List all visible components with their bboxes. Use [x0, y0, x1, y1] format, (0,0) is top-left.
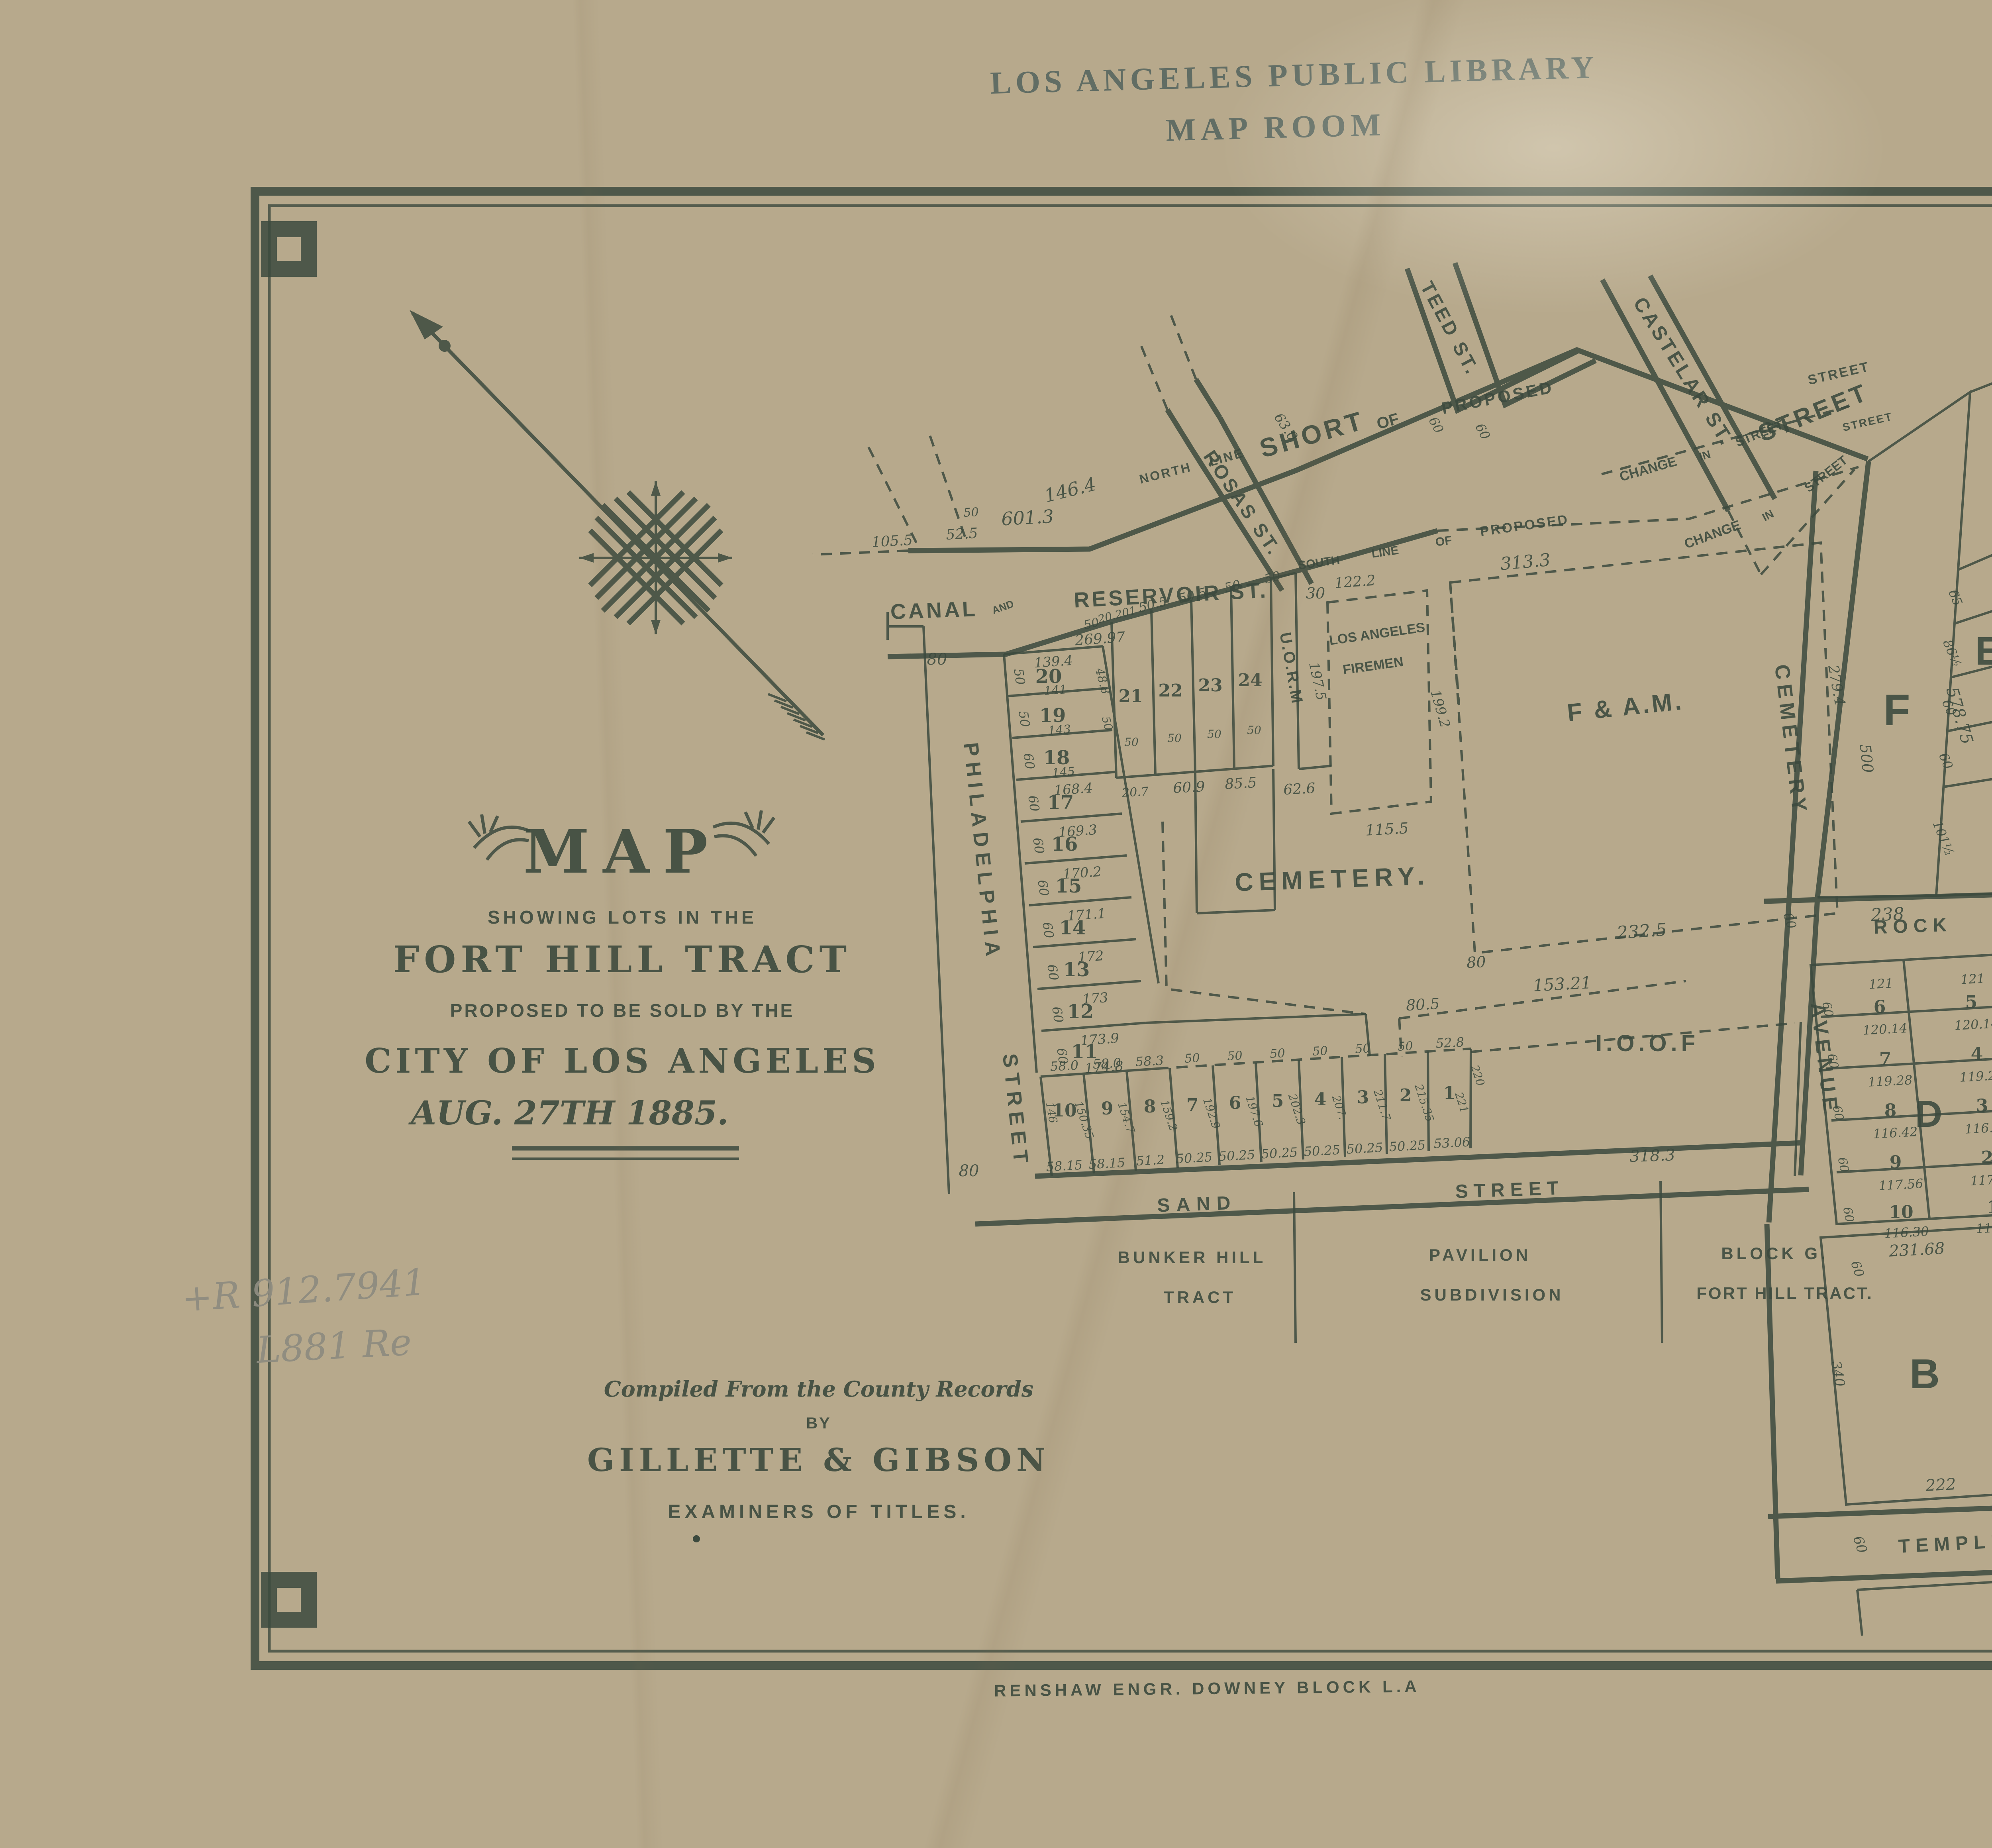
map-label: 60: [1035, 879, 1052, 897]
map-label: 50.25: [1218, 1147, 1255, 1164]
map-label: 60.9: [1172, 779, 1205, 796]
map-label: FIREMEN: [1342, 654, 1404, 678]
map-label: ROCK: [1873, 914, 1953, 938]
map-label: 60: [1936, 751, 1956, 771]
map-label: NORTH: [1138, 460, 1193, 487]
map-label: 101½: [1929, 818, 1957, 858]
map-label: 500: [1856, 743, 1876, 774]
call-number-line1: +R 912.7941: [180, 1261, 428, 1320]
map-label: 159.2: [1158, 1098, 1180, 1132]
map-label: 58.0: [1050, 1057, 1079, 1074]
map-label: 121: [1960, 971, 1985, 987]
library-stamp: LOS ANGELES PUBLIC LIBRARY MAP ROOM: [990, 50, 1600, 153]
map-label: CHANGE: [1618, 454, 1678, 485]
map-label: OF: [1435, 534, 1453, 549]
map-label: STREET: [998, 1052, 1033, 1169]
title-line2: SHOWING LOTS IN THE: [488, 907, 757, 928]
map-label: 120.14: [1954, 1016, 1992, 1033]
map-label: 80: [927, 650, 947, 669]
call-number: +R 912.7941 L881 Re: [180, 1261, 428, 1371]
map-label: 20.7: [1121, 785, 1149, 800]
map-label: CHANGE: [1682, 518, 1743, 552]
map-label: 60: [1780, 910, 1800, 930]
map-label: 53.06: [1433, 1134, 1470, 1152]
map-label: SUBDIVISION: [1420, 1285, 1564, 1304]
map-labels: 105.552.550601.3146.4NORTHLINESHORTOFPRO…: [871, 278, 1992, 1557]
map-label: 58.15: [1046, 1157, 1083, 1175]
map-label: 154.7: [1115, 1101, 1137, 1135]
map-label: 60: [1840, 1206, 1857, 1224]
map-label: 50.25: [1261, 1145, 1298, 1162]
map-label: 50: [1099, 715, 1116, 732]
map-label: 340: [1828, 1360, 1848, 1388]
map-label: 197.6: [1243, 1094, 1265, 1128]
map-label: I.O.O.F: [1596, 1030, 1699, 1056]
map-label: 60: [1848, 1259, 1867, 1279]
map-label: 86½: [1940, 638, 1965, 670]
map-label: 30: [1306, 585, 1325, 602]
credits-dot: [693, 1535, 700, 1542]
map-label: PAVILION: [1429, 1246, 1531, 1264]
map-label: 60: [1025, 795, 1042, 813]
map-label: 58.0: [1092, 1055, 1121, 1072]
map-label: SOUTH: [1297, 553, 1341, 572]
map-label: 145: [1052, 765, 1076, 780]
map-label: 60: [1039, 921, 1057, 940]
stamp-line1: LOS ANGELES PUBLIC LIBRARY: [990, 50, 1598, 101]
map-sheet: LOS ANGELES PUBLIC LIBRARY MAP ROOM: [0, 0, 1992, 1848]
map-label: 141: [1044, 683, 1068, 698]
title-word-map: MAP: [523, 817, 721, 887]
map-label: 10: [1889, 1202, 1913, 1222]
map-label: 50: [1011, 668, 1028, 686]
map-label: 50: [963, 505, 979, 520]
map-label: 153.21: [1533, 973, 1592, 995]
map-label: 202.3: [1286, 1092, 1308, 1126]
map-label: STREET: [1802, 453, 1850, 495]
frame-outer: [255, 191, 1992, 1666]
map-label: LOS ANGELES: [1328, 620, 1426, 648]
map-label: 15: [1055, 875, 1082, 897]
map-label: 58.15: [1088, 1155, 1125, 1172]
frame-corner-ornament-bl: [261, 1572, 317, 1628]
map-label: 3: [1976, 1096, 1988, 1116]
map-label: 6: [1229, 1093, 1241, 1113]
map-label: 60: [1819, 1001, 1836, 1018]
map-label: 313.3: [1500, 550, 1551, 575]
map-label: 116.30: [1976, 1219, 1992, 1236]
map-label: 115.5: [1365, 819, 1409, 839]
map-label: U.O.R.M: [1276, 631, 1306, 706]
map-label: 116.42: [1873, 1124, 1918, 1142]
map-label: 17: [1047, 791, 1074, 814]
map-label: 221: [1452, 1090, 1471, 1115]
map-label: 222: [1925, 1475, 1957, 1495]
map-label: 62.6: [1283, 780, 1316, 798]
map-label: 121: [1868, 975, 1894, 992]
map-label: 50.25: [1346, 1140, 1383, 1157]
map-label: 80: [959, 1162, 979, 1180]
map-label: 8: [1884, 1101, 1897, 1121]
title-flourish-left-icon: [469, 814, 530, 860]
map-label: FORT HILL TRACT.: [1696, 1284, 1873, 1303]
map-label: 215.35: [1412, 1082, 1437, 1123]
map-label: 16: [1051, 833, 1078, 855]
map-label: 14: [1059, 917, 1086, 939]
map-label: 13: [1063, 959, 1090, 981]
map-label: 60: [1020, 752, 1037, 771]
map-label: E: [1975, 629, 1992, 673]
map-label: 197.5: [1306, 661, 1329, 702]
map-label: STREET: [1841, 410, 1894, 434]
map-label: 50: [1184, 1051, 1200, 1066]
map-label: 80: [1466, 953, 1486, 971]
map-label: 50: [1270, 1046, 1286, 1061]
map-label: 4: [1971, 1044, 1983, 1064]
credits-block: Compiled From the County Records BY GILL…: [587, 1376, 1050, 1542]
map-label: 51.2: [1136, 1152, 1165, 1169]
map-label: 50: [1312, 1044, 1328, 1059]
map-label: B: [1910, 1351, 1941, 1397]
title-line5: CITY OF LOS ANGELES: [365, 1041, 880, 1081]
map-label: 4: [1314, 1089, 1327, 1110]
map-label: 60: [1850, 1534, 1870, 1556]
map-label: F & A.M.: [1566, 687, 1685, 727]
map-label: 232.5: [1616, 920, 1667, 944]
map-label: 117.56: [1878, 1176, 1924, 1193]
map-label: 60: [1835, 1156, 1851, 1174]
map-label: 122.2: [1334, 572, 1376, 591]
north-arrow-head-icon: [410, 310, 443, 339]
map-label: 60: [1825, 1053, 1841, 1070]
title-date: AUG. 27TH 1885.: [408, 1094, 728, 1132]
map-label: 21: [1118, 686, 1143, 706]
map-label: 50: [1355, 1042, 1371, 1056]
map-label: 50: [1227, 1049, 1243, 1063]
map-label: PROPOSED: [1479, 512, 1570, 539]
map-label: AND: [990, 598, 1015, 616]
map-label: CANAL: [890, 597, 978, 624]
map-label: 60: [1830, 1104, 1846, 1122]
map-label: 85.5: [1224, 775, 1257, 793]
credits-line4: EXAMINERS OF TITLES.: [668, 1501, 969, 1522]
map-label: 50.25: [1389, 1138, 1426, 1155]
map-label: 50: [1247, 724, 1261, 737]
map-label: 5: [1272, 1091, 1284, 1111]
map-label: 50: [1124, 736, 1139, 749]
map-label: 22: [1158, 681, 1182, 701]
fort-hill-map-svg: LOS ANGELES PUBLIC LIBRARY MAP ROOM: [0, 0, 1992, 1848]
map-label: 48.8: [1092, 666, 1112, 696]
map-label: 2: [1400, 1085, 1412, 1106]
map-label: CEMETERY: [1770, 663, 1812, 817]
north-arrow-bead: [439, 340, 451, 352]
north-arrow-shaft: [412, 313, 823, 735]
map-label: 50: [1016, 710, 1033, 728]
map-label: 211.7: [1371, 1087, 1394, 1122]
map-label: BUNKER HILL: [1118, 1248, 1267, 1267]
map-label: STREET: [1455, 1177, 1565, 1203]
map-label: 23: [1198, 675, 1222, 696]
map-label: 119.28: [1959, 1067, 1992, 1085]
map-label: IN: [1760, 507, 1776, 524]
map-label: 60: [1044, 963, 1061, 982]
map-label: 8: [1144, 1097, 1156, 1117]
map-label: 3: [1357, 1087, 1369, 1108]
credits-line1: Compiled From the County Records: [604, 1376, 1033, 1402]
title-flourish-right-icon: [713, 810, 774, 856]
map-label: 60: [1030, 837, 1047, 855]
credits-line3: GILLETTE & GIBSON: [587, 1441, 1050, 1479]
map-label: 52.5: [945, 525, 978, 543]
map-label: 5: [1965, 992, 1978, 1012]
map-label: 146.4: [1042, 473, 1098, 506]
map-label: F: [1883, 686, 1911, 735]
map-label: 52.8: [1435, 1034, 1465, 1051]
map-label: 50.25: [1304, 1142, 1341, 1159]
map-label: 9: [1890, 1152, 1902, 1173]
map-label: 601.3: [1001, 506, 1054, 530]
map-label: 9: [1101, 1099, 1114, 1119]
map-label: 1: [1987, 1197, 1992, 1218]
north-arrow-feather: [768, 694, 825, 740]
map-label: CEMETERY.: [1234, 861, 1430, 897]
map-label: 120.14: [1863, 1020, 1908, 1038]
map-label: PHILADELPHIA: [959, 742, 1005, 963]
credits-line2: BY: [806, 1414, 831, 1432]
title-line3: FORT HILL TRACT: [393, 938, 851, 981]
map-label: 80.5: [1406, 995, 1440, 1014]
map-label: 119.28: [1868, 1072, 1913, 1090]
map-label: 50.25: [1176, 1150, 1213, 1167]
map-label: 192.9: [1200, 1096, 1223, 1130]
map-label: 207.: [1329, 1093, 1349, 1121]
title-line4: PROPOSED TO BE SOLD BY THE: [450, 1000, 794, 1021]
map-label: 117.56: [1970, 1171, 1992, 1189]
engraver-imprint: RENSHAW ENGR. DOWNEY BLOCK L.A: [994, 1677, 1420, 1700]
map-label: 269.97: [1074, 629, 1126, 649]
map-label: SHORT: [1256, 405, 1368, 463]
map-label: 12: [1067, 1001, 1094, 1023]
map-label: 50: [1398, 1039, 1414, 1054]
map-label: 318.3: [1629, 1146, 1676, 1166]
map-label: TRACT: [1164, 1288, 1236, 1307]
north-arrow-compass: [410, 310, 825, 740]
map-label: 7: [1879, 1049, 1892, 1069]
map-label: 2: [1981, 1148, 1992, 1168]
map-label: 50: [1207, 728, 1221, 741]
frame-corner-ornament-tl: [261, 221, 317, 277]
map-label: 58.3: [1135, 1053, 1164, 1069]
map-label: 7: [1186, 1095, 1199, 1115]
map-label: 6: [1874, 997, 1886, 1017]
map-frame: [255, 191, 1992, 1666]
title-block: MAP SHOWING LOTS IN THE FORT HILL TRACT …: [365, 810, 880, 1159]
map-label: 199.2: [1427, 688, 1453, 730]
map-label: 143: [1048, 722, 1072, 738]
map-label: 24: [1238, 670, 1262, 691]
compass-star-icon: [579, 481, 732, 634]
map-label: D: [1915, 1093, 1943, 1135]
map-label: 105.5: [871, 532, 913, 550]
map-label: BLOCK G.: [1721, 1244, 1828, 1263]
map-label: 65: [1945, 587, 1965, 608]
map-label: 231.68: [1888, 1239, 1945, 1260]
stamp-line2: MAP ROOM: [1165, 107, 1386, 148]
call-number-line2: L881 Re: [255, 1321, 413, 1371]
map-label: 116.42: [1965, 1119, 1992, 1137]
map-label: 50: [1167, 732, 1182, 745]
map-label: 60: [1049, 1006, 1066, 1024]
map-label: 116.30: [1884, 1224, 1929, 1241]
map-label: SAND: [1157, 1193, 1237, 1216]
map-label: TEMPLE: [1898, 1530, 1992, 1558]
map-label: 60: [1472, 421, 1493, 442]
map-label: 1: [1443, 1083, 1456, 1103]
